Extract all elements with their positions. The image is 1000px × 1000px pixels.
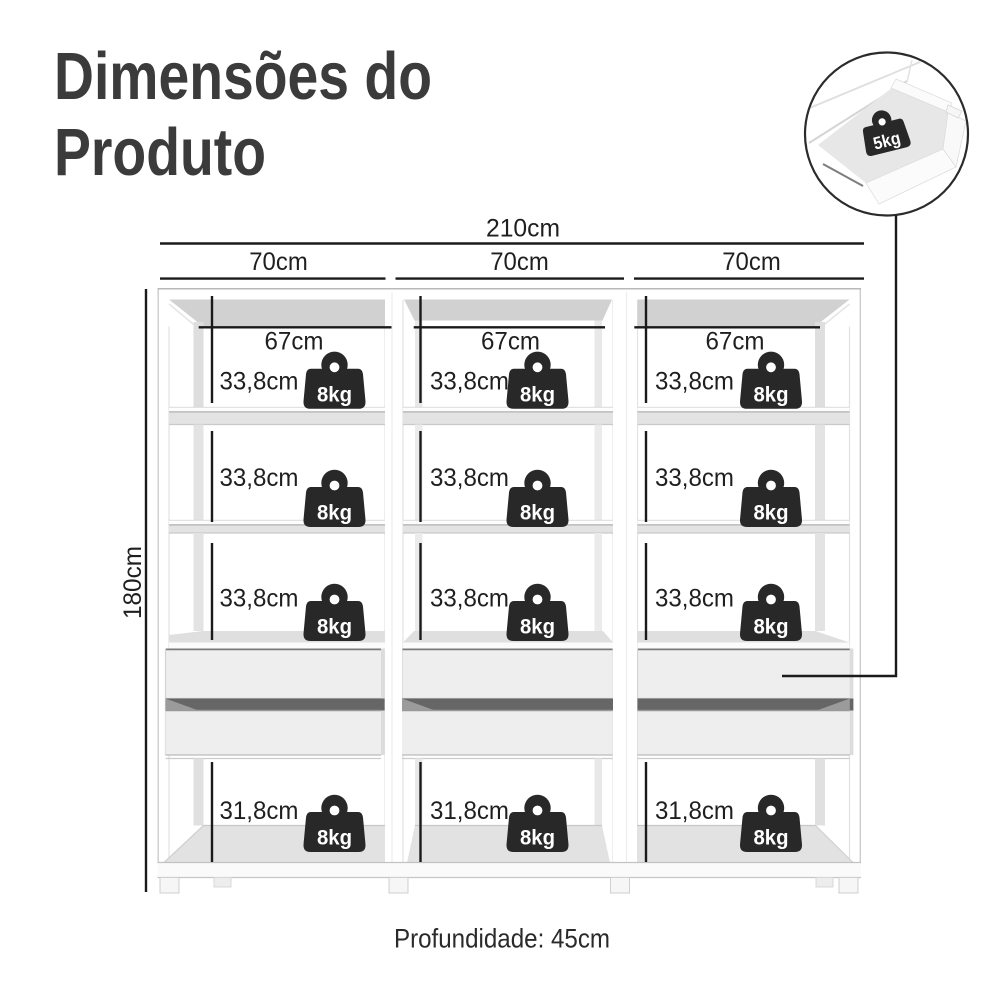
svg-text:33,8cm: 33,8cm — [430, 368, 509, 396]
svg-text:33,8cm: 33,8cm — [220, 368, 299, 396]
svg-text:210cm: 210cm — [486, 215, 560, 243]
svg-text:31,8cm: 31,8cm — [430, 797, 509, 825]
svg-text:180cm: 180cm — [119, 546, 147, 619]
svg-text:33,8cm: 33,8cm — [220, 585, 299, 613]
svg-text:70cm: 70cm — [490, 248, 549, 276]
svg-text:Dimensões do: Dimensões do — [54, 39, 432, 114]
svg-text:70cm: 70cm — [722, 248, 781, 276]
svg-text:33,8cm: 33,8cm — [655, 368, 734, 396]
svg-text:33,8cm: 33,8cm — [430, 585, 509, 613]
svg-text:Profundidade: 45cm: Profundidade: 45cm — [394, 924, 610, 954]
svg-text:67cm: 67cm — [481, 328, 540, 356]
svg-text:31,8cm: 31,8cm — [220, 797, 299, 825]
svg-text:Produto: Produto — [54, 115, 266, 190]
svg-text:67cm: 67cm — [265, 328, 324, 356]
svg-text:70cm: 70cm — [249, 248, 308, 276]
svg-text:33,8cm: 33,8cm — [430, 464, 509, 492]
svg-text:31,8cm: 31,8cm — [655, 797, 734, 825]
svg-text:33,8cm: 33,8cm — [220, 464, 299, 492]
svg-text:33,8cm: 33,8cm — [655, 585, 734, 613]
svg-text:33,8cm: 33,8cm — [655, 464, 734, 492]
svg-text:67cm: 67cm — [706, 328, 765, 356]
